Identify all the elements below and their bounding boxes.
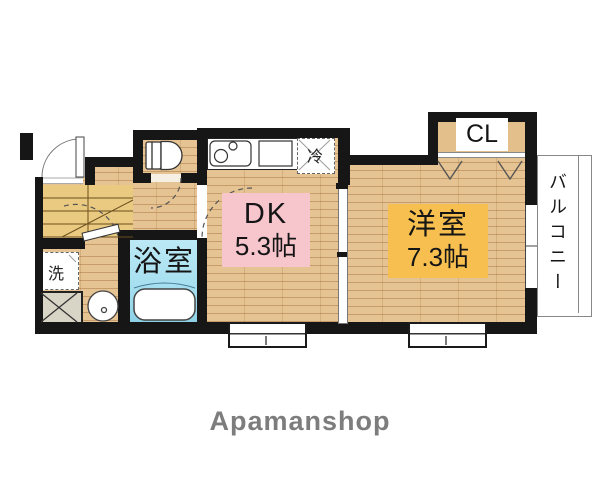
western-room-label: 洋室 7.3帖 xyxy=(388,204,488,278)
dk-area: 5.3帖 xyxy=(235,232,297,262)
stove-icon xyxy=(210,141,251,166)
brand-logo: Apamanshop xyxy=(150,405,450,437)
closet-label: CL xyxy=(456,118,508,151)
entrance-door xyxy=(42,137,84,184)
toilet-icon xyxy=(146,142,182,170)
sink-icon xyxy=(259,141,292,166)
wash-basin-icon xyxy=(88,291,118,321)
washing-machine-label: 洗 xyxy=(44,260,68,284)
western-room-area: 7.3帖 xyxy=(407,243,469,273)
toilet-door-arc xyxy=(151,178,181,208)
floorplan-canvas: バルコニー xyxy=(0,0,600,480)
western-room-name: 洋室 xyxy=(407,209,469,242)
dk-room-label: DK 5.3帖 xyxy=(222,193,310,267)
shaft-cross xyxy=(41,293,77,322)
bathtub-icon xyxy=(134,283,195,320)
bathroom-label: 浴室 xyxy=(128,242,200,276)
washer-corner-tick xyxy=(69,255,76,262)
refrigerator-label: 冷 xyxy=(302,143,328,167)
closet-door-marks xyxy=(438,161,522,179)
dk-name: DK xyxy=(244,198,288,231)
